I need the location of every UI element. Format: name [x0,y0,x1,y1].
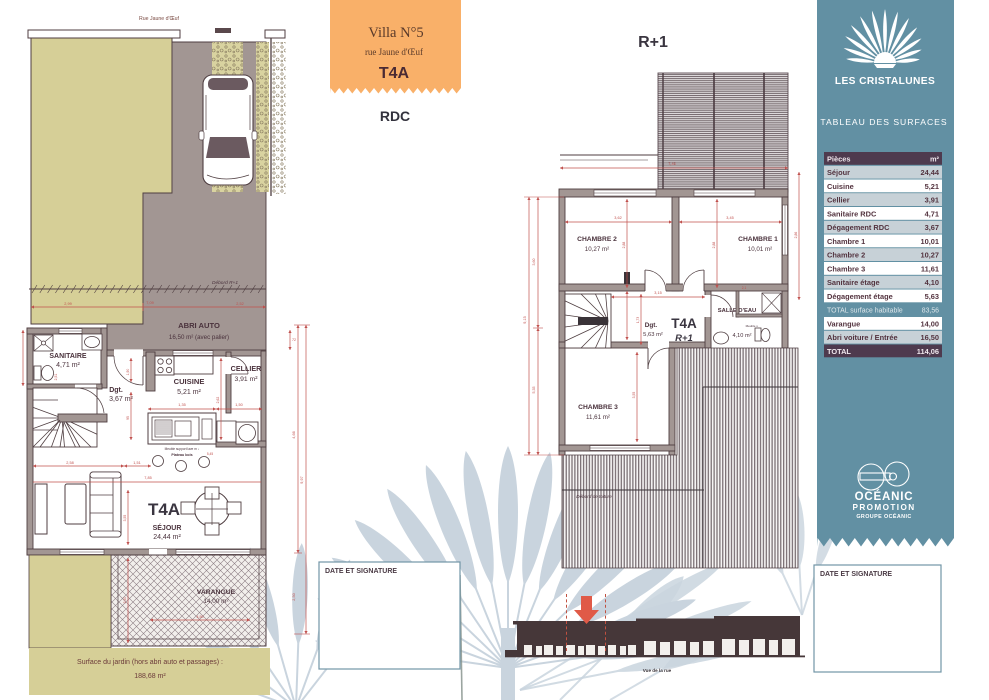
svg-text:Débord R+1: Débord R+1 [212,280,238,286]
svg-text:14,00: 14,00 [921,319,940,328]
svg-text:9,15: 9,15 [523,316,527,323]
svg-text:Séjour: Séjour [827,168,850,177]
svg-text:10,27: 10,27 [921,251,940,260]
svg-text:Plateau bois: Plateau bois [171,453,192,457]
svg-text:3,55: 3,55 [123,515,127,522]
svg-text:RDC: RDC [380,108,410,124]
svg-text:11,61 m²: 11,61 m² [586,414,610,421]
svg-text:CELLIER: CELLIER [231,364,263,373]
svg-text:Chambre 2: Chambre 2 [827,251,865,260]
svg-text:1,51: 1,51 [133,461,140,465]
svg-text:rue Jaune d'Œuf: rue Jaune d'Œuf [365,47,423,57]
svg-text:4,50: 4,50 [197,615,204,619]
svg-text:5,21: 5,21 [925,182,939,191]
svg-text:Dégagement RDC: Dégagement RDC [827,223,890,232]
svg-text:7,85: 7,85 [144,476,151,480]
svg-text:5,35: 5,35 [532,387,536,394]
svg-text:DATE ET SIGNATURE: DATE ET SIGNATURE [325,568,397,575]
svg-text:2,88: 2,88 [712,242,716,249]
svg-text:2,88: 2,88 [622,242,626,249]
svg-text:10,27 m²: 10,27 m² [585,246,609,253]
svg-text:Sanitaire étage: Sanitaire étage [827,278,880,287]
svg-text:14,00 m²: 14,00 m² [203,598,228,605]
svg-text:3,55: 3,55 [632,392,636,399]
svg-text:2,1: 2,1 [742,286,747,290]
svg-text:83,56: 83,56 [922,308,939,315]
svg-text:Abri voiture / Entrée: Abri voiture / Entrée [827,333,898,342]
svg-text:ABRI AUTO: ABRI AUTO [178,321,220,330]
svg-text:1,90: 1,90 [126,369,130,376]
svg-text:Rue Jaune d'Œuf: Rue Jaune d'Œuf [139,16,179,22]
svg-text:Varangue: Varangue [827,319,860,328]
svg-text:114,06: 114,06 [917,347,939,356]
svg-text:CHAMBRE 3: CHAMBRE 3 [578,404,618,411]
svg-text:7,09: 7,09 [146,301,153,305]
svg-text:5,63 m²: 5,63 m² [643,332,663,338]
svg-text:188,68 m²: 188,68 m² [134,673,166,680]
svg-text:24,44: 24,44 [921,168,940,177]
svg-text:Pièces: Pièces [827,154,850,163]
svg-text:2,86: 2,86 [794,232,798,239]
svg-text:5,21 m²: 5,21 m² [177,389,201,396]
svg-text:Débord de toiture: Débord de toiture [576,494,612,499]
svg-text:T4A: T4A [148,500,180,519]
svg-text:R+1: R+1 [638,34,668,51]
svg-text:GROUPE OCÉANIC: GROUPE OCÉANIC [856,512,911,520]
svg-text:7,45: 7,45 [668,162,675,166]
svg-text:2,62: 2,62 [216,397,220,404]
svg-text:9,97: 9,97 [300,476,304,483]
svg-text:3,91 m²: 3,91 m² [234,376,258,383]
svg-text:Villa N°5: Villa N°5 [368,25,423,41]
svg-text:Surface du jardin (hors abri a: Surface du jardin (hors abri auto et pas… [77,659,223,666]
svg-text:Dgt.: Dgt. [645,322,658,329]
svg-text:2,52: 2,52 [236,302,243,306]
svg-text:16,50: 16,50 [921,333,940,342]
svg-text:4,10: 4,10 [925,278,939,287]
svg-text:2,51: 2,51 [54,374,58,381]
svg-text:5,63: 5,63 [925,292,939,301]
svg-text:3,67: 3,67 [925,223,939,232]
svg-text:1,35: 1,35 [178,403,185,407]
svg-text:OCÉANIC: OCÉANIC [855,490,914,503]
svg-text:Dégagement étage: Dégagement étage [827,292,893,301]
svg-text:Dgt.: Dgt. [109,387,123,394]
svg-text:T4A: T4A [379,65,410,82]
svg-text:CHAMBRE 1: CHAMBRE 1 [738,236,778,243]
svg-text:SANITAIRE: SANITAIRE [49,353,87,360]
svg-text:1,50: 1,50 [235,403,242,407]
svg-text:TOTAL surface habitable: TOTAL surface habitable [827,308,903,315]
svg-text:CHAMBRE 2: CHAMBRE 2 [577,236,617,243]
svg-text:4,66: 4,66 [292,431,296,438]
svg-text:CUISINE: CUISINE [174,377,205,386]
svg-text:4,71: 4,71 [925,209,939,218]
svg-text:PROMOTION: PROMOTION [852,503,915,512]
svg-text:3,45: 3,45 [726,216,733,220]
svg-text:3,15: 3,15 [654,291,661,295]
svg-text:R+1: R+1 [675,333,693,344]
svg-text:16,50 m² (avec palier): 16,50 m² (avec palier) [169,334,229,341]
svg-text:Vue de la rue: Vue de la rue [643,668,672,673]
svg-text:95: 95 [126,416,130,420]
svg-text:3,62: 3,62 [614,216,621,220]
svg-text:Chambre 1: Chambre 1 [827,237,865,246]
svg-text:Chambre 3: Chambre 3 [827,264,865,273]
svg-text:11,61: 11,61 [921,264,939,273]
svg-text:2,99: 2,99 [64,302,71,306]
svg-text:SÉJOUR: SÉJOUR [153,523,182,532]
svg-text:DATE ET SIGNATURE: DATE ET SIGNATURE [820,571,892,578]
svg-text:VARANGUE: VARANGUE [197,589,236,596]
svg-text:5,45: 5,45 [207,452,213,456]
svg-text:Cellier: Cellier [827,196,850,205]
svg-text:LES CRISTALUNES: LES CRISTALUNES [835,76,935,87]
svg-text:Meuble v.: Meuble v. [746,324,759,328]
svg-text:3,60: 3,60 [532,259,536,266]
svg-text:4,71 m²: 4,71 m² [56,362,80,369]
svg-text:Cuisine: Cuisine [827,182,854,191]
svg-text:Sanitaire RDC: Sanitaire RDC [827,209,877,218]
svg-text:3,91: 3,91 [925,196,939,205]
svg-text:10,01: 10,01 [921,237,940,246]
svg-text:10,01 m²: 10,01 m² [748,246,772,253]
svg-text:m²: m² [930,154,940,163]
svg-text:72: 72 [292,338,296,342]
svg-text:4,10 m²: 4,10 m² [733,333,752,339]
svg-text:2,50: 2,50 [123,597,127,604]
svg-text:24,44 m²: 24,44 m² [153,534,181,541]
svg-text:TABLEAU DES SURFACES: TABLEAU DES SURFACES [820,117,947,127]
svg-text:Meuble support lave m ↓: Meuble support lave m ↓ [165,447,200,451]
svg-text:1,73: 1,73 [636,317,640,323]
svg-text:2,50: 2,50 [292,593,296,600]
svg-text:TOTAL: TOTAL [827,347,851,356]
svg-text:3,67 m²: 3,67 m² [109,396,133,403]
svg-text:2,58: 2,58 [66,461,73,465]
svg-text:T4A: T4A [671,316,697,331]
